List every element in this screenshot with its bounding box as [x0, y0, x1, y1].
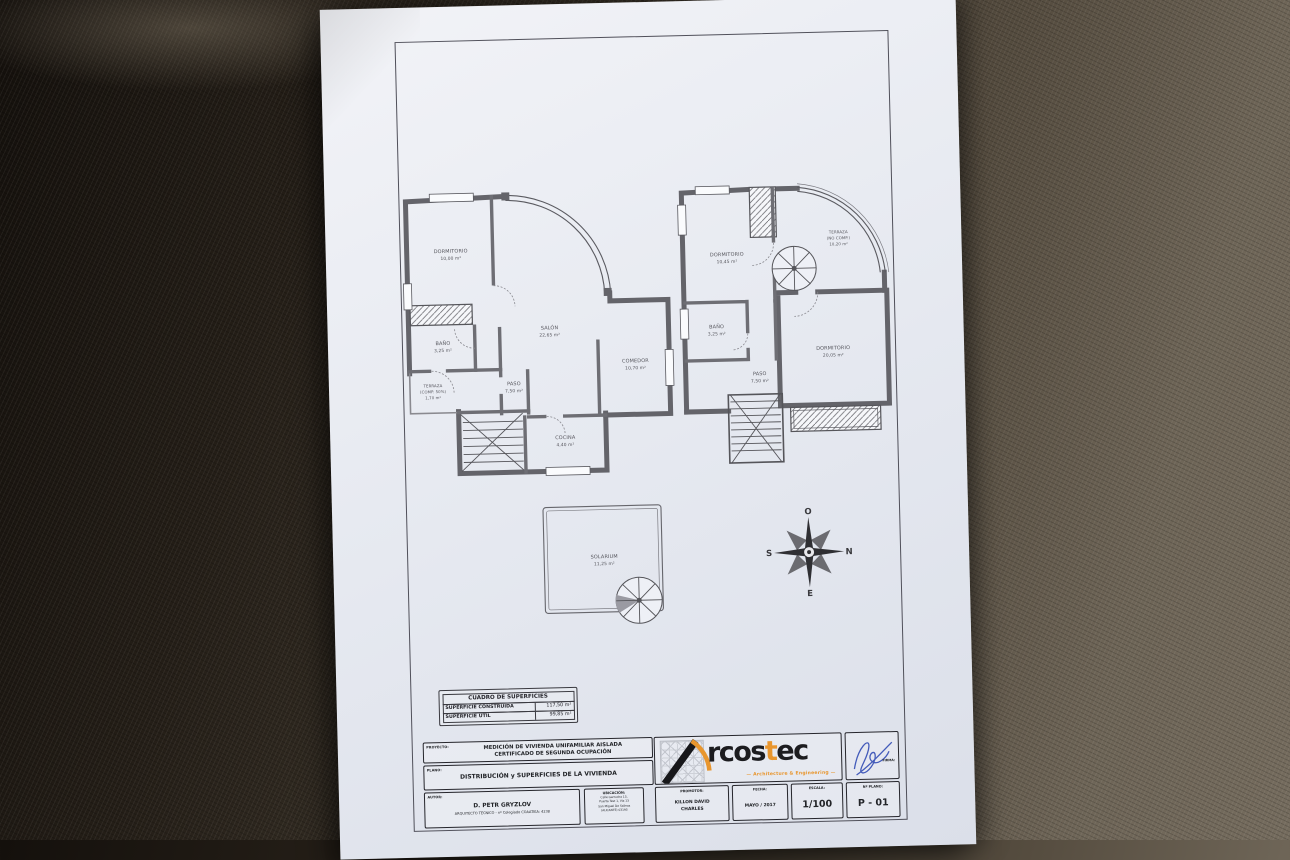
room-area: 3,25 m² — [434, 348, 452, 354]
room-label: DORMITORIO — [434, 248, 468, 255]
spiral-stair — [615, 577, 663, 624]
ubicacion-line: (ALICANTE) 03193 — [601, 808, 628, 813]
surfaces-table: CUADRO DE SUPERFICIES SUPERFICIE CONSTRU… — [438, 687, 578, 726]
room-area: 4,40 m² — [556, 442, 574, 448]
ground-floor-plan: DORMITORIO 10,00 m² SALÓN 22,65 m² COMED… — [401, 181, 678, 478]
room-note: (COMP. 50%) — [420, 389, 447, 395]
room-label: PASO — [507, 381, 521, 387]
compass-north: N — [845, 547, 852, 557]
escala-value: 1/100 — [802, 798, 832, 810]
room-label: COMEDOR — [622, 358, 649, 365]
compass-west: O — [804, 507, 811, 517]
room-area: 10,45 m² — [717, 259, 738, 266]
num-plano-value: P - 01 — [858, 797, 889, 809]
room-area: 10,70 m² — [625, 365, 646, 372]
room-label: DORMITORIO — [710, 252, 744, 259]
compass-south: S — [766, 549, 772, 559]
firma-cell: FIRMA: — [845, 731, 900, 780]
plano-value: DISTRIBUCIÓN y SUPERFICIES DE LA VIVIEND… — [460, 770, 617, 781]
escala-cell: ESCALA: 1/100 — [791, 782, 844, 819]
compass-rose: O N E S — [763, 506, 855, 598]
logo-tagline: — Architecture & Engineering — — [746, 771, 835, 778]
num-plano-cell: Nº PLANO: P - 01 — [846, 781, 901, 818]
spiral-stair — [772, 246, 817, 291]
plan-sheet: DORMITORIO 10,00 m² SALÓN 22,65 m² COMED… — [320, 0, 977, 860]
drawing-border: DORMITORIO 10,00 m² SALÓN 22,65 m² COMED… — [395, 30, 908, 832]
surface-label: SUPERFICIE ÚTIL — [443, 711, 534, 721]
surface-value: 99,85 m² — [534, 710, 573, 719]
fecha-cell: FECHA: MAYO / 2017 — [732, 784, 789, 821]
room-area: 10,20 m² — [829, 241, 848, 246]
stairs — [461, 413, 524, 471]
plano-cell: PLANO: DISTRIBUCIÓN y SUPERFICIES DE LA … — [423, 760, 654, 791]
room-note: (NO COMP.) — [827, 235, 851, 241]
proyecto-cell: PROYECTO: MEDICIÓN DE VIVIENDA UNIFAMILI… — [423, 737, 653, 764]
ubicacion-cell: UBICACIÓN: Calle Garrucha 13, Puerta Tes… — [584, 787, 645, 824]
autor-name: D. PETR GRYZLOV — [473, 802, 531, 809]
first-floor-plan: DORMITORIO 10,45 m² TERRAZA (NO COMP.) 1… — [677, 176, 899, 471]
room-label: SOLARIUM — [591, 554, 618, 561]
room-label: TERRAZA — [828, 229, 848, 234]
compass-east: E — [807, 589, 813, 599]
logo-a-mark — [658, 738, 713, 785]
room-label: DORMITORIO — [816, 345, 850, 352]
room-label: BAÑO — [709, 323, 724, 330]
room-area: 20,05 m² — [823, 352, 844, 359]
room-label: TERRAZA — [422, 383, 442, 388]
surface-value: 117,50 m² — [534, 701, 573, 710]
room-area: 3,25 m² — [708, 331, 726, 337]
fecha-value: MAYO / 2017 — [745, 802, 776, 808]
room-area: 11,25 m² — [594, 561, 615, 568]
proyecto-line2: CERTIFICADO DE SEGUNDA OCUPACIÓN — [494, 748, 611, 757]
room-area: 1,70 m² — [425, 395, 441, 400]
title-block: PROYECTO: MEDICIÓN DE VIVIENDA UNIFAMILI… — [423, 731, 901, 829]
firma-label: FIRMA: — [882, 758, 895, 762]
autor-title: ARQUITECTO TÉCNICO - nº Colegiado COAATI… — [455, 809, 550, 815]
room-area: 10,00 m² — [440, 256, 461, 263]
promotor-line2: CHARLES — [681, 807, 704, 814]
autor-cell: AUTOR: D. PETR GRYZLOV ARQUITECTO TÉCNIC… — [424, 789, 581, 829]
solarium-plan: SOLARIUM 11,25 m² — [537, 496, 675, 624]
room-label: COCINA — [555, 435, 576, 442]
signature — [846, 732, 899, 779]
room-area: 22,65 m² — [539, 332, 560, 339]
logo-wordmark: rcostec — [707, 735, 808, 768]
promotor-cell: PROMOTOR: KILLON DAVID CHARLES — [655, 785, 730, 823]
room-label: PASO — [753, 371, 767, 377]
room-label: SALÓN — [541, 324, 559, 331]
room-label: BAÑO — [435, 340, 450, 347]
stairs — [728, 394, 784, 463]
room-labels-ground: DORMITORIO 10,00 m² SALÓN 22,65 m² COMED… — [417, 244, 652, 452]
room-area: 7,50 m² — [751, 378, 769, 384]
room-area: 7,50 m² — [505, 388, 523, 394]
arcostec-logo: rcostec — Architecture & Engineering — — [654, 732, 843, 785]
